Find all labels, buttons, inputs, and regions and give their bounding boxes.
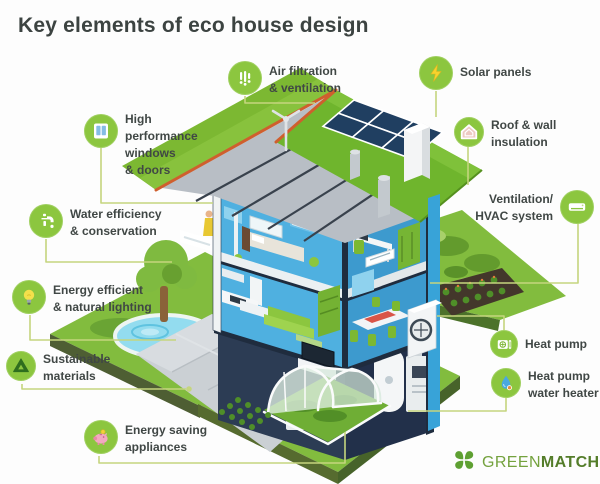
- callout-heat-pump: Heat pump: [490, 330, 587, 358]
- callout-solar-panels: Solar panels: [419, 56, 531, 90]
- callout-label: Heat pump: [525, 336, 587, 353]
- callout-label: Energy efficient & natural lighting: [53, 282, 152, 316]
- page-title: Key elements of eco house design: [18, 14, 369, 38]
- callout-label: Energy saving appliances: [125, 422, 207, 456]
- heat-pump-icon: [490, 330, 518, 358]
- piggy-bank-icon: [84, 420, 118, 454]
- fan-icon: [228, 61, 262, 95]
- callout-roof-insulation: Roof & wall insulation: [454, 117, 556, 151]
- callout-lighting: Energy efficient & natural lighting: [12, 280, 152, 316]
- brand-text: GREENMATCH: [482, 454, 599, 472]
- infographic: Key elements of eco house design Air fil…: [0, 0, 600, 484]
- connector-materials-dot: [186, 386, 192, 392]
- callout-label: Solar panels: [460, 64, 531, 81]
- callout-label: Ventilation/ HVAC system: [456, 191, 553, 225]
- callout-label: Heat pump water heater: [528, 368, 599, 402]
- callout-label: Roof & wall insulation: [491, 117, 556, 151]
- window-icon: [84, 114, 118, 148]
- callout-appliances: Energy saving appliances: [84, 420, 207, 456]
- faucet-icon: [29, 204, 63, 238]
- callout-air-filtration: Air filtration & ventilation: [228, 61, 341, 97]
- callout-label: High performance windows & doors: [125, 111, 198, 179]
- lightning-icon: [419, 56, 453, 90]
- callout-water-heater: Heat pump water heater: [491, 368, 599, 402]
- chimney: [404, 123, 430, 182]
- callout-label: Sustainable materials: [43, 351, 110, 385]
- lightbulb-icon: [12, 280, 46, 314]
- callout-label: Water efficiency & conservation: [70, 206, 162, 240]
- insulated-house-icon: [454, 117, 484, 147]
- callout-windows-doors: High performance windows & doors: [84, 114, 198, 179]
- callout-water-efficiency: Water efficiency & conservation: [29, 204, 162, 240]
- callout-hvac: Ventilation/ HVAC system: [456, 190, 594, 225]
- callout-label: Air filtration & ventilation: [269, 63, 341, 97]
- callout-materials: Sustainable materials: [6, 351, 110, 385]
- water-drop-icon: [491, 368, 521, 398]
- greenmatch-logo: GREENMATCH: [451, 447, 599, 478]
- ac-unit-icon: [560, 190, 594, 224]
- clover-icon: [451, 447, 477, 478]
- recycle-icon: [6, 351, 36, 381]
